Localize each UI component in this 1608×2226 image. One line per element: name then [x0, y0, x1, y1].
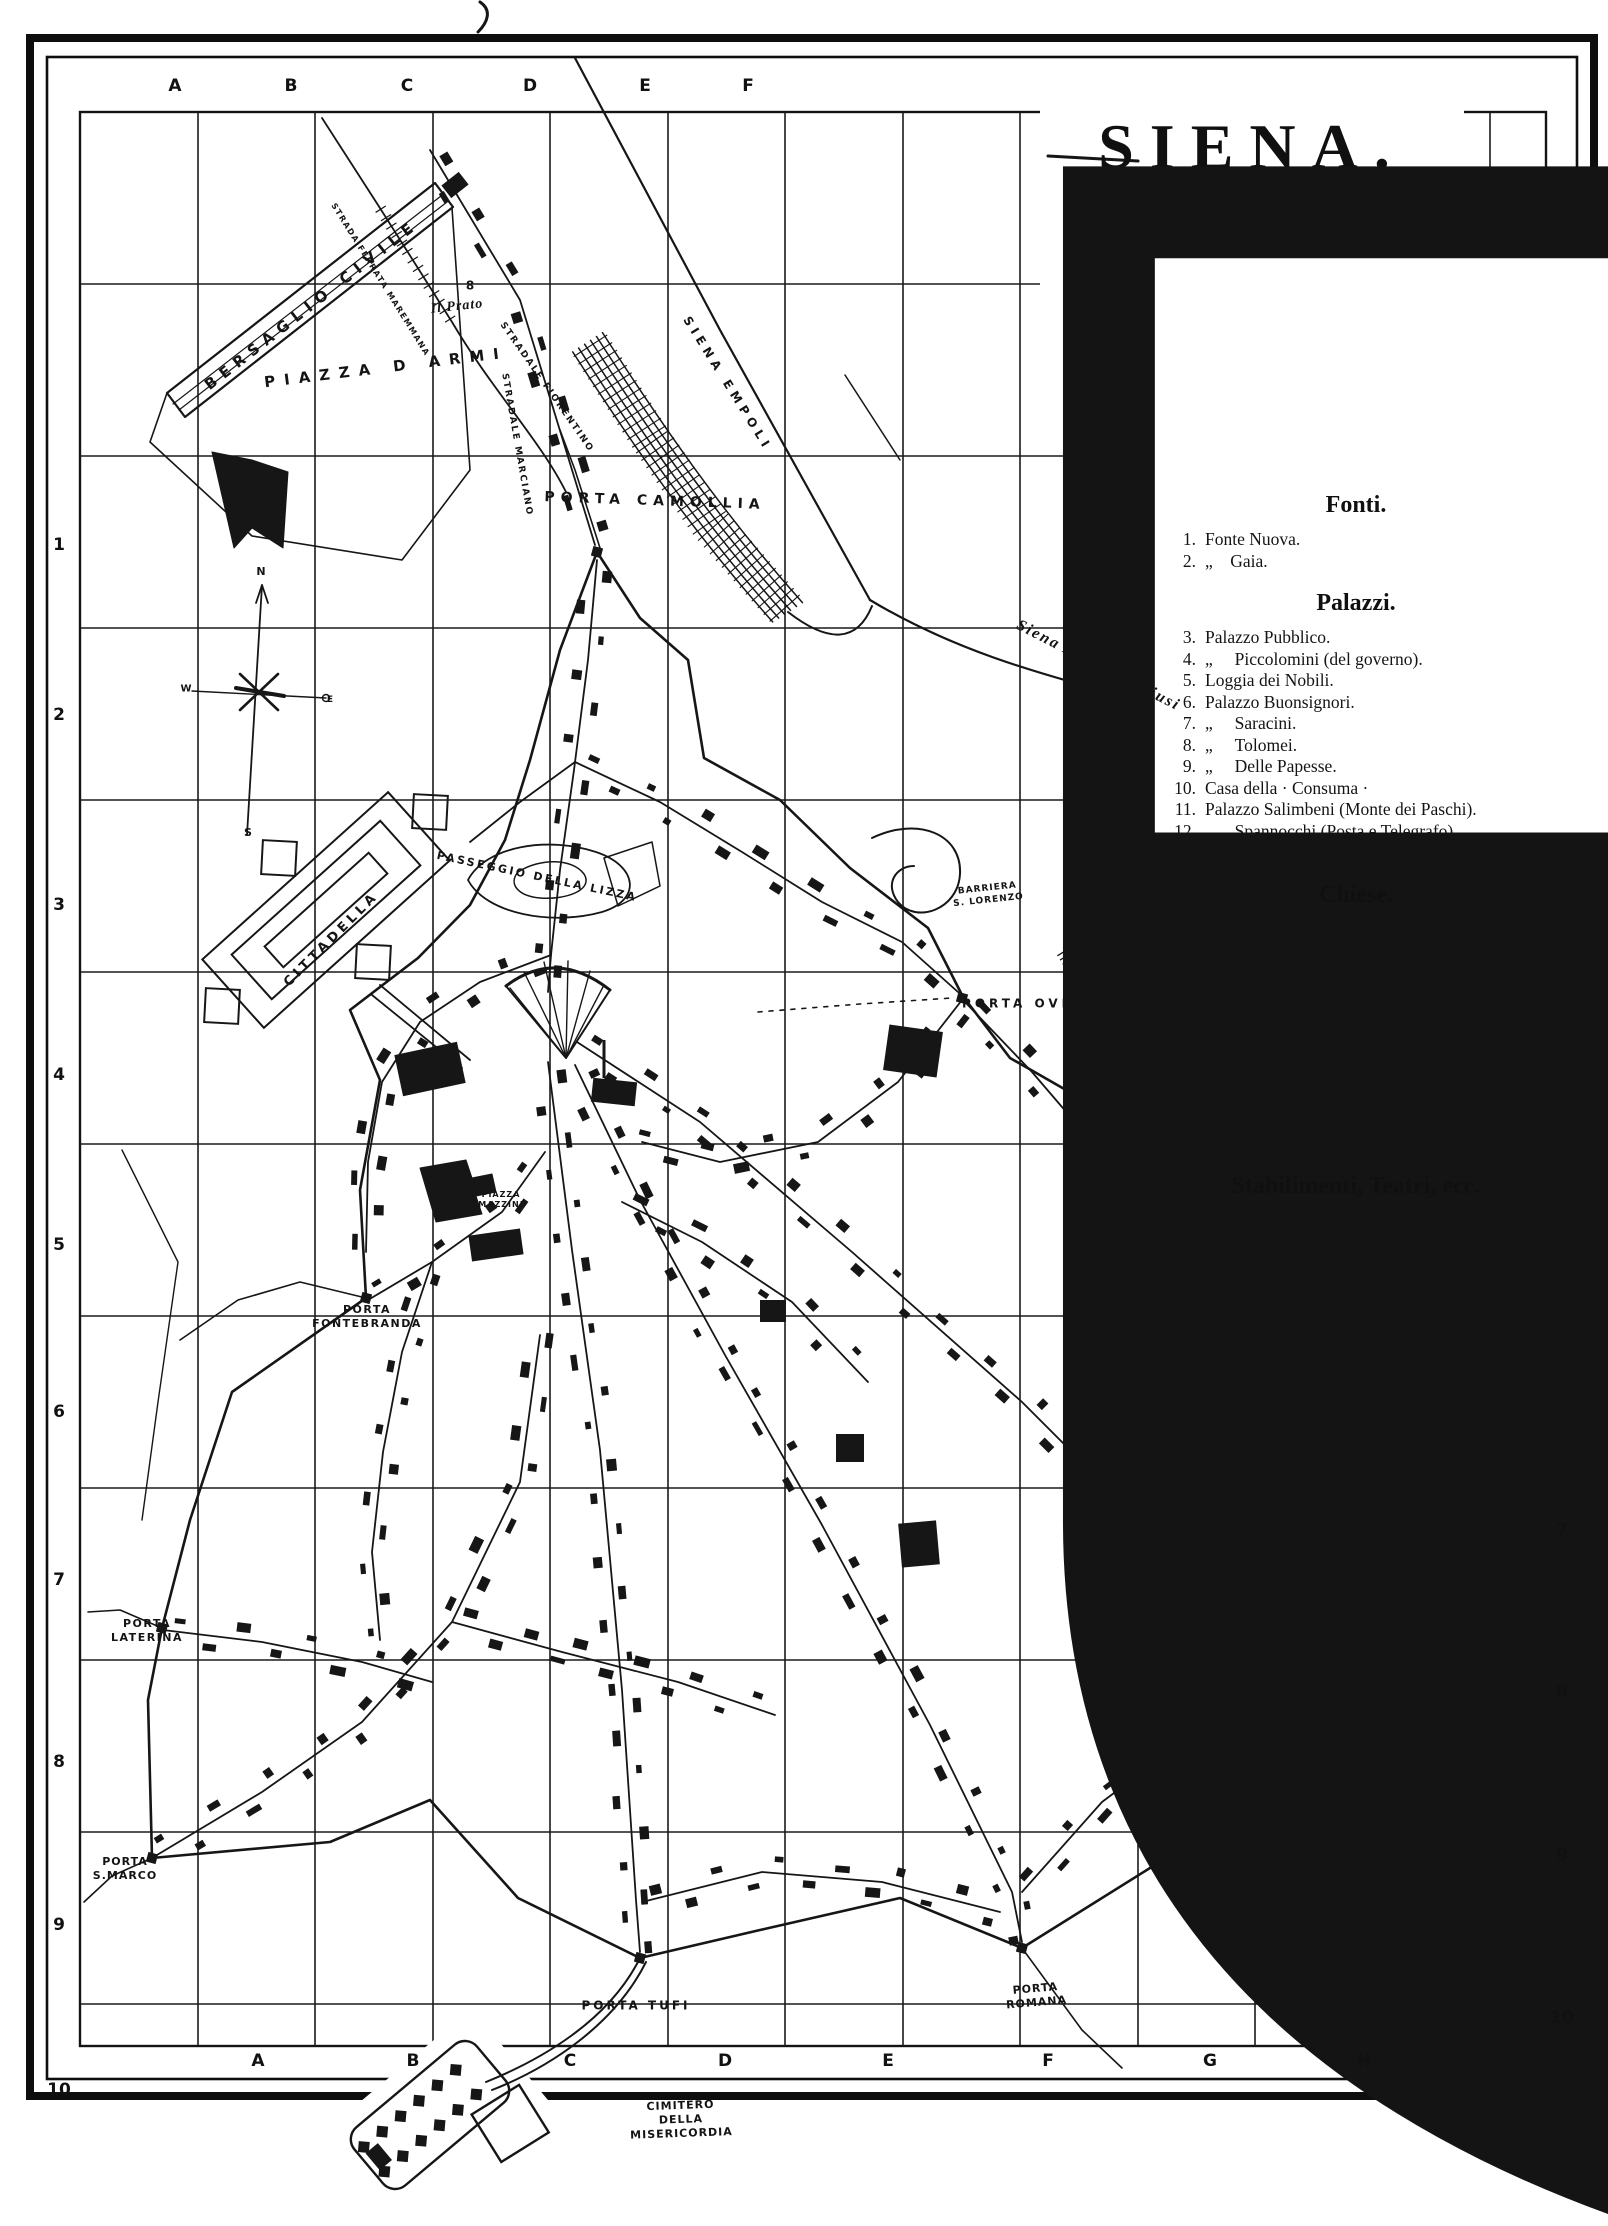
- label-s: S: [244, 826, 252, 840]
- grid-number-left-8: 8: [53, 1752, 65, 1772]
- legend-item: 17.S. Spirito.: [1158, 983, 1554, 1005]
- label-tufi: PORTA TUFI: [581, 1998, 690, 2013]
- legend-item-text: Oratorio di S. Bernardino.: [1205, 1112, 1554, 1134]
- legend-item: 9.„ Delle Papesse.: [1158, 756, 1554, 778]
- legend-item-number: 19.: [1158, 1026, 1196, 1048]
- label-mk8: 8: [466, 278, 474, 293]
- legend-item-number: 11.: [1158, 799, 1196, 821]
- grid-letter-bottom-D: D: [718, 2051, 732, 2071]
- label-line: MAZZINI: [478, 1200, 523, 1210]
- legend-item: 2.„ Gaia.: [1158, 551, 1554, 573]
- label-laterina: PORTALATERINA: [111, 1617, 183, 1645]
- legend-item-text: Casa di S. Caterina.: [1205, 1091, 1554, 1113]
- legend-item-text: Accademia di Belle Arti.: [1205, 1253, 1554, 1275]
- legend-item-text: S. Cristofano.: [1205, 1048, 1554, 1070]
- legend-item: 28.Teatro dei Rinnuovati.: [1158, 1275, 1554, 1297]
- legend-item-number: 7.: [1158, 713, 1196, 735]
- legend-item-number: 8.: [1158, 735, 1196, 757]
- legend-item: 27.Accademia di Belle Arti.: [1158, 1253, 1554, 1275]
- legend-item-text: Oratorio di S. Caterina.: [1205, 1069, 1554, 1091]
- legend-item-text: Chiesa dei Servi.: [1205, 1005, 1554, 1027]
- legend-item-number: 10.: [1158, 778, 1196, 800]
- legend-item-number: 30.: [1158, 1318, 1196, 1340]
- legend-item-text: Casa della · Consuma ·: [1205, 778, 1554, 800]
- label-cimitero: CIMITERODELLAMISERICORDIA: [629, 2097, 733, 2143]
- grid-number-left-1: 1: [53, 535, 65, 555]
- legend-item-number: 20.: [1158, 1048, 1196, 1070]
- label-line: S.MARCO: [93, 1869, 157, 1883]
- label-line: FONTEBRANDA: [312, 1317, 422, 1331]
- legend-item-number: 15.: [1158, 940, 1196, 962]
- legend-item-number: 25.: [1158, 1210, 1196, 1232]
- label-e: E: [327, 695, 333, 707]
- label-line: LATERINA: [111, 1631, 183, 1645]
- legend-item-text: Palazzo Salimbeni (Monte dei Paschi).: [1205, 799, 1554, 821]
- legend-item: 25.Spedale di S. M. della Scala.: [1158, 1210, 1554, 1232]
- legend-item-text: Fonte Nuova.: [1205, 529, 1554, 551]
- legend-item: 15.S. Domenico.: [1158, 940, 1554, 962]
- legend-item: 12.„ Spannocchi (Posta e Telegrafo).: [1158, 821, 1554, 843]
- legend-item-number: 24.: [1158, 1134, 1196, 1156]
- legend-item: 24.Chiesa dello Spedale.: [1158, 1134, 1554, 1156]
- label-mazzini: PIAZZAMAZZINI: [478, 1190, 523, 1210]
- legend: Fonti.1.Fonte Nuova.2.„ Gaia.Palazzi.3.P…: [1158, 474, 1554, 1382]
- legend-item: 18.Chiesa dei Servi.: [1158, 1005, 1554, 1027]
- grid-number-left-6: 6: [53, 1402, 65, 1422]
- legend-item-number: 27.: [1158, 1253, 1196, 1275]
- label-line: PORTA: [111, 1617, 183, 1631]
- legend-item-number: 2.: [1158, 551, 1196, 573]
- grid-letter-top-C: C: [401, 76, 413, 96]
- legend-item: 8.„ Tolomei.: [1158, 735, 1554, 757]
- grid-letter-bottom-B: B: [407, 2051, 420, 2071]
- legend-section-title: Stabilimenti, Teatri, ecc.: [1158, 1173, 1554, 1200]
- grid-number-right-8: 8: [1556, 1682, 1568, 1702]
- legend-item-number: 21.: [1158, 1069, 1196, 1091]
- legend-item-number: 12.: [1158, 821, 1196, 843]
- legend-item: 16.S. Francesco.: [1158, 962, 1554, 984]
- legend-item-text: Accademia e Teatro dei Rozzi.: [1205, 1296, 1554, 1318]
- legend-item: 14.Duomo.: [1158, 919, 1554, 941]
- legend-item: 21.Oratorio di S. Caterina.: [1158, 1069, 1554, 1091]
- legend-item-text: Palazzo Buonsignori.: [1205, 692, 1554, 714]
- grid-letter-top-A: A: [168, 76, 181, 96]
- grid-number-right-7: 7: [1556, 1520, 1568, 1540]
- legend-item-text: „ Spannocchi (Posta e Telegrafo).: [1205, 821, 1554, 843]
- label-pispini: PORTAPISPINI: [1366, 1736, 1417, 1767]
- legend-item-number: 31.: [1158, 1361, 1196, 1383]
- label-line: PORTA: [312, 1303, 422, 1317]
- legend-item-text: Palazzo Pubblico.: [1205, 627, 1554, 649]
- legend-section-title: Palazzi.: [1158, 590, 1554, 617]
- legend-item: 3.Palazzo Pubblico.: [1158, 627, 1554, 649]
- label-w: W: [180, 684, 191, 697]
- legend-item: 30.Conservatorio di S. M. Maddalena gia …: [1158, 1318, 1554, 1361]
- grid-number-right-9: 9: [1556, 1845, 1568, 1865]
- legend-item-text: Conservatorio di S. M. Maddalena gia del…: [1205, 1318, 1554, 1361]
- legend-item: 1.Fonte Nuova.: [1158, 529, 1554, 551]
- legend-item-number: 14.: [1158, 919, 1196, 941]
- grid-number-left-9: 9: [53, 1915, 65, 1935]
- label-n: N: [256, 565, 265, 579]
- legend-item-number: 18.: [1158, 1005, 1196, 1027]
- grid-letter-bottom-C: C: [564, 2051, 576, 2071]
- legend-item-text: Loggia dei Nobili.: [1205, 670, 1554, 692]
- legend-item-number: 9.: [1158, 756, 1196, 778]
- legend-section-title: Chiese.: [1158, 882, 1554, 909]
- legend-item-text: Istituto Pendola pei Sordomuti.: [1205, 1361, 1554, 1383]
- legend-item-number: 29.: [1158, 1296, 1196, 1318]
- grid-letter-bottom-E: E: [882, 2051, 894, 2071]
- legend-item: 19.S. Martino.: [1158, 1026, 1554, 1048]
- grid-letter-top-B: B: [285, 76, 298, 96]
- grid-number-right-10: 10: [1550, 2008, 1574, 2028]
- label-fontebranda: PORTAFONTEBRANDA: [312, 1303, 422, 1331]
- grid-letter-bottom-H: H: [1357, 2051, 1371, 2071]
- legend-item-text: S. Spirito.: [1205, 983, 1554, 1005]
- legend-item-number: 16.: [1158, 962, 1196, 984]
- legend-item: 20.S. Cristofano.: [1158, 1048, 1554, 1070]
- grid-number-left-5: 5: [53, 1235, 65, 1255]
- legend-item-text: S. Martino.: [1205, 1026, 1554, 1048]
- label-ovile: PORTA OVILE: [962, 996, 1094, 1011]
- legend-item-text: S. Domenico.: [1205, 940, 1554, 962]
- label-line: PIAZZA: [478, 1190, 523, 1200]
- legend-item-number: 1.: [1158, 529, 1196, 551]
- legend-item: 22.Casa di S. Caterina.: [1158, 1091, 1554, 1113]
- legend-item-text: S. Francesco.: [1205, 962, 1554, 984]
- legend-item-text: „ Delle Papesse.: [1205, 756, 1554, 778]
- legend-item-text: „ del · Magnifico ·: [1205, 842, 1554, 864]
- legend-item-text: „ Gaia.: [1205, 551, 1554, 573]
- legend-item-number: 26.: [1158, 1232, 1196, 1254]
- legend-item: 5.Loggia dei Nobili.: [1158, 670, 1554, 692]
- grid-number-left-7: 7: [53, 1570, 65, 1590]
- legend-section-title: Fonti.: [1158, 492, 1554, 519]
- legend-item: 4.„ Piccolomini (del governo).: [1158, 649, 1554, 671]
- legend-item-number: 4.: [1158, 649, 1196, 671]
- grid-number-left-4: 4: [53, 1065, 65, 1085]
- legend-item-text: „ Piccolomini (del governo).: [1205, 649, 1554, 671]
- grid-letter-top-F: F: [742, 76, 754, 96]
- legend-item-number: 23.: [1158, 1112, 1196, 1134]
- grid-letter-top-D: D: [523, 76, 537, 96]
- grid-number-left-2: 2: [53, 705, 65, 725]
- legend-item: 7.„ Saracini.: [1158, 713, 1554, 735]
- legend-item-text: Spedale di S. M. della Scala.: [1205, 1210, 1554, 1232]
- legend-item: 31.Istituto Pendola pei Sordomuti.: [1158, 1361, 1554, 1383]
- legend-item-text: „ Tolomei.: [1205, 735, 1554, 757]
- siena-map-page: SIENA. Scale 1 in 1700 Fonti.1.Fonte Nuo…: [0, 0, 1608, 2226]
- grid-letter-top-E: E: [639, 76, 651, 96]
- legend-item: 29.Accademia e Teatro dei Rozzi.: [1158, 1296, 1554, 1318]
- legend-item: 11.Palazzo Salimbeni (Monte dei Paschi).: [1158, 799, 1554, 821]
- legend-item-number: 28.: [1158, 1275, 1196, 1297]
- legend-item-number: 22.: [1158, 1091, 1196, 1113]
- legend-item-text: Chiesa dello Spedale.: [1205, 1134, 1554, 1156]
- label-romana: PORTAROMANA: [1004, 1979, 1067, 2012]
- grid-letter-bottom-G: G: [1203, 2051, 1217, 2071]
- legend-item: 13.„ del · Magnifico ·: [1158, 842, 1554, 864]
- legend-item-number: 17.: [1158, 983, 1196, 1005]
- title-block: SIENA. Scale 1 in 1700: [1040, 110, 1464, 258]
- legend-item-number: 13.: [1158, 842, 1196, 864]
- legend-item: 26.Università.: [1158, 1232, 1554, 1254]
- label-line: PORTA: [93, 1855, 157, 1869]
- grid-number-left-3: 3: [53, 895, 65, 915]
- legend-item: 10.Casa della · Consuma ·: [1158, 778, 1554, 800]
- legend-item-number: 3.: [1158, 627, 1196, 649]
- legend-item-text: „ Saracini.: [1205, 713, 1554, 735]
- legend-item: 6.Palazzo Buonsignori.: [1158, 692, 1554, 714]
- legend-item: 23.Oratorio di S. Bernardino.: [1158, 1112, 1554, 1134]
- grid-letter-bottom-A: A: [251, 2051, 264, 2071]
- grid-number-left-10: 10: [47, 2080, 71, 2100]
- grid-letter-bottom-F: F: [1042, 2051, 1054, 2071]
- label-smarco: PORTAS.MARCO: [93, 1855, 157, 1883]
- legend-item-text: Università.: [1205, 1232, 1554, 1254]
- legend-item-text: Teatro dei Rinnuovati.: [1205, 1275, 1554, 1297]
- legend-item-text: Duomo.: [1205, 919, 1554, 941]
